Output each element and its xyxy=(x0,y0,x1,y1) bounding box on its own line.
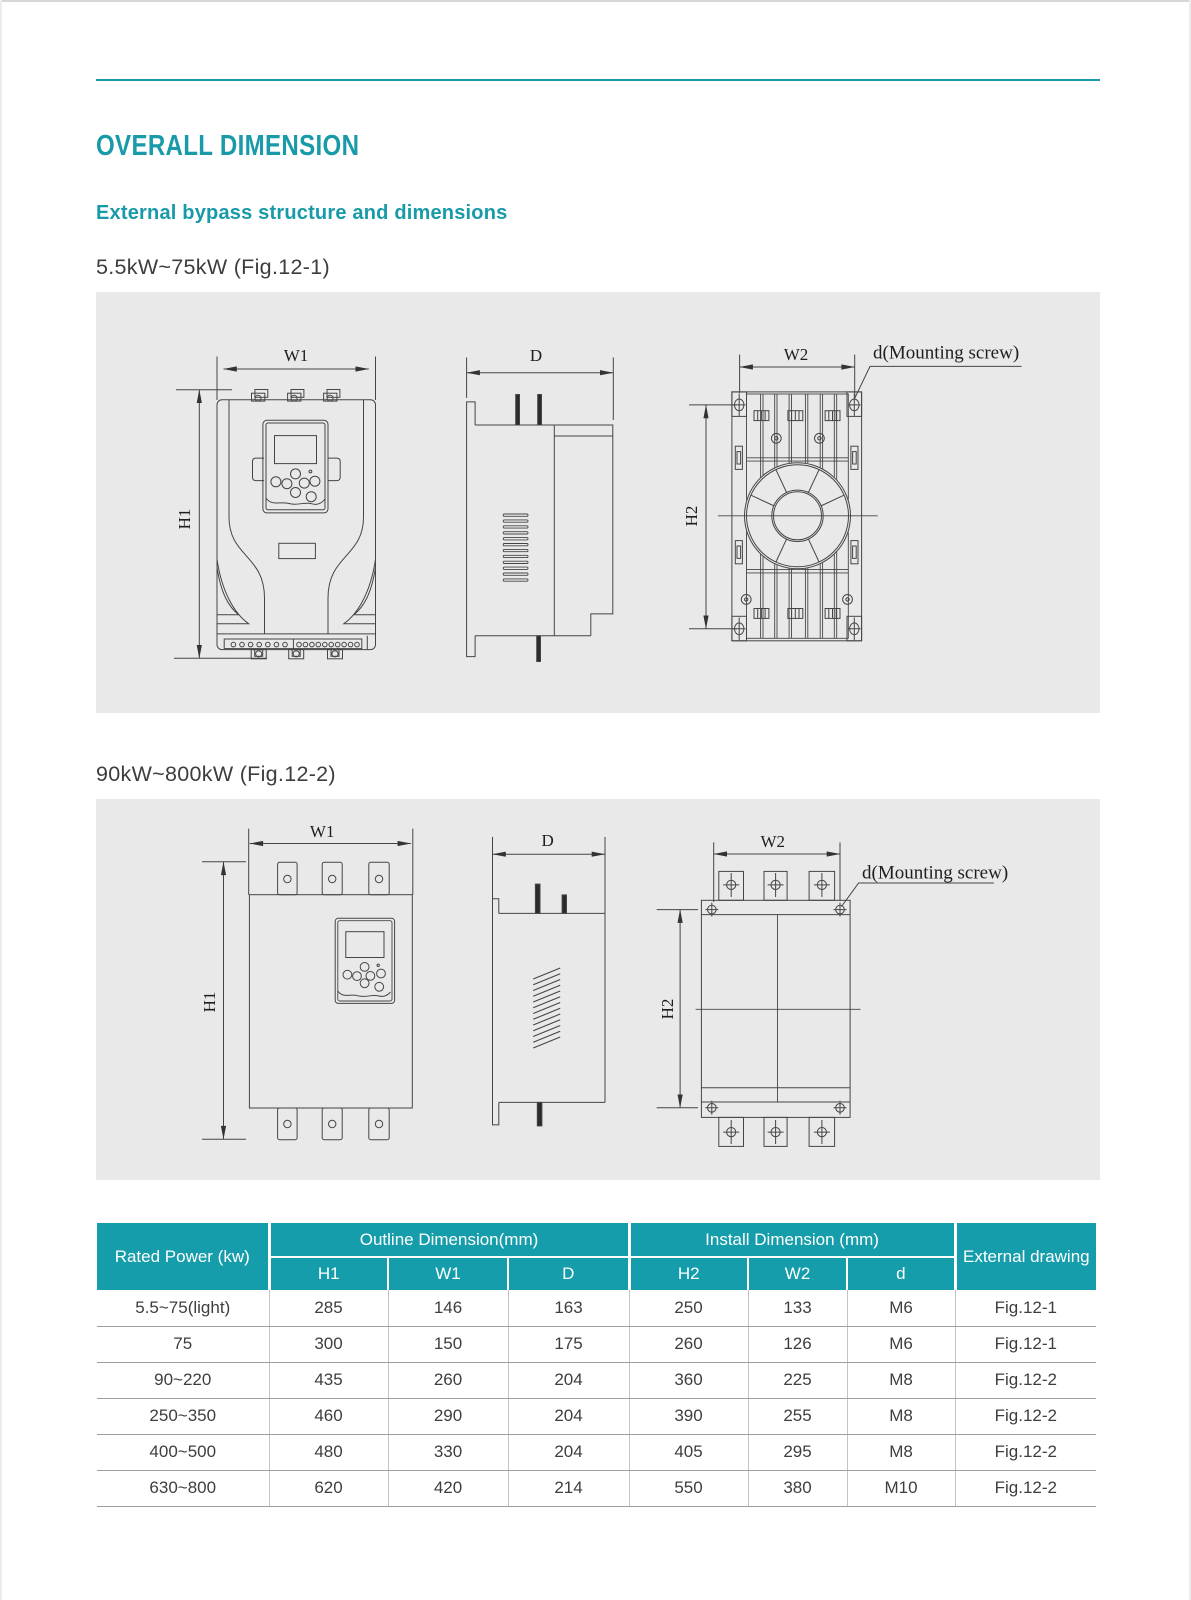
svg-text:D: D xyxy=(530,346,542,365)
svg-text:H1: H1 xyxy=(175,509,194,530)
svg-text:d(Mounting screw): d(Mounting screw) xyxy=(862,863,1008,884)
svg-text:H2: H2 xyxy=(658,999,677,1020)
svg-text:W2: W2 xyxy=(761,832,786,851)
svg-text:H1: H1 xyxy=(200,992,219,1013)
svg-text:d(Mounting screw): d(Mounting screw) xyxy=(873,343,1019,364)
svg-text:W2: W2 xyxy=(784,345,809,364)
svg-text:D: D xyxy=(541,831,553,850)
svg-text:W1: W1 xyxy=(284,346,309,365)
svg-text:H2: H2 xyxy=(682,506,701,527)
svg-text:W1: W1 xyxy=(310,822,335,841)
